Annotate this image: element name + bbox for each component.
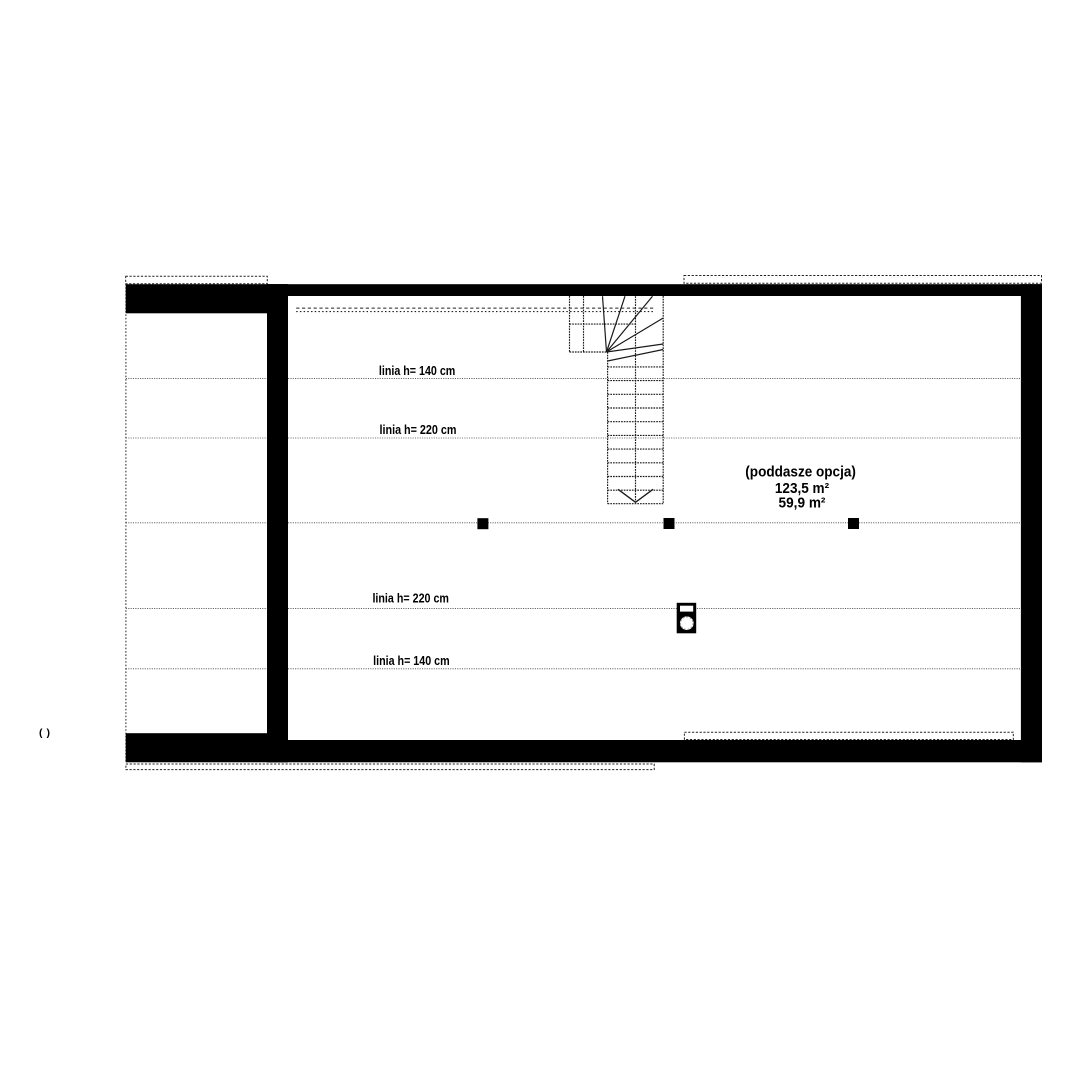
svg-text:linia h= 140 cm: linia h= 140 cm bbox=[379, 363, 455, 378]
svg-text:linia h= 220 cm: linia h= 220 cm bbox=[372, 591, 449, 606]
svg-text:123,5 m²: 123,5 m² bbox=[775, 481, 829, 497]
svg-text:(poddasze opcja): (poddasze opcja) bbox=[745, 463, 856, 480]
svg-text:linia h= 220 cm: linia h= 220 cm bbox=[380, 422, 457, 437]
svg-text:(): () bbox=[39, 727, 54, 739]
svg-text:59,9 m²: 59,9 m² bbox=[779, 496, 826, 512]
svg-text:linia h= 140 cm: linia h= 140 cm bbox=[373, 653, 450, 668]
